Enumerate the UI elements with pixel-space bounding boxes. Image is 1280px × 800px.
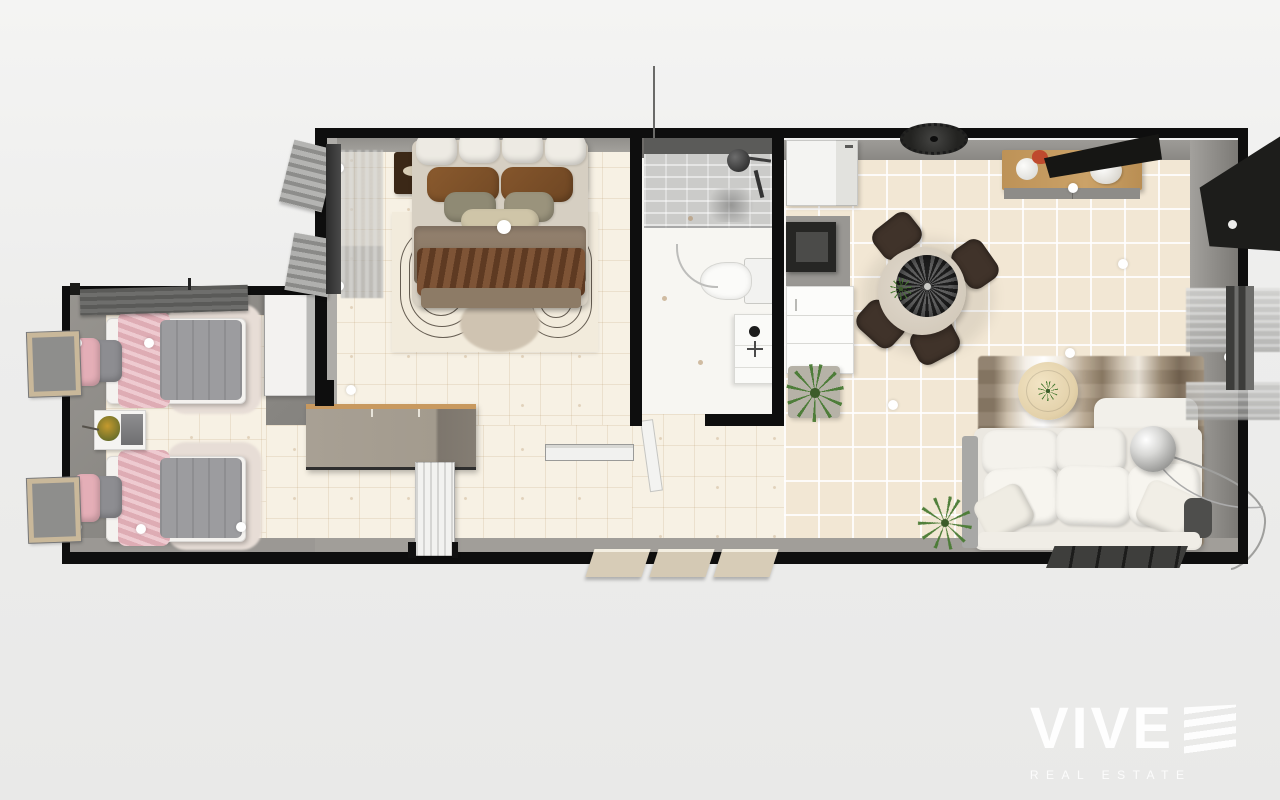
downlight-dot: [1118, 259, 1128, 269]
fan-hub: [930, 136, 938, 142]
downlight-dot: [136, 524, 146, 534]
downlight-dot: [1065, 348, 1075, 358]
shower-head: [727, 149, 750, 172]
kitchen-plant: [786, 364, 844, 422]
wall-bathroom-right: [772, 136, 784, 426]
stepping-stone-1: [585, 549, 650, 577]
wardrobe-seam: [371, 409, 373, 417]
floorplan-render: VIVE REAL ESTATE: [0, 0, 1280, 800]
ceiling-fan: [900, 123, 968, 155]
wall-bathroom-left: [630, 136, 642, 426]
coffee-table-plant: [1038, 381, 1058, 401]
annex-rail-hook: [70, 283, 80, 295]
brand-wordmark: VIVE: [1030, 700, 1174, 758]
master-window-frame: [326, 144, 341, 294]
counter-seam: [787, 343, 853, 344]
door-handle-dot: [1228, 220, 1237, 229]
floor-speck: [688, 216, 693, 221]
annex-top-rail: [80, 285, 249, 315]
stepping-stone-3: [713, 549, 778, 577]
master-window-curtain-lower: [341, 246, 383, 298]
downlight-dot: [346, 385, 356, 395]
faucet-cross-handle: [754, 341, 756, 357]
annex-rail-pole: [188, 278, 191, 290]
shower-shadow: [703, 188, 759, 221]
door-jamb-mark: [452, 542, 458, 558]
master-sliding-door: [545, 444, 634, 461]
nightstand-laptop: [121, 414, 143, 445]
hallway-exterior-door: [415, 462, 455, 556]
shower-dark-band: [644, 138, 772, 154]
shower-glass-line: [644, 226, 772, 228]
wardrobe-seam: [418, 409, 420, 417]
table-plant-sprig: [890, 278, 912, 300]
counter-seam: [787, 315, 853, 316]
downlight-dot: [497, 220, 511, 234]
annex-wardrobe: [264, 292, 318, 396]
hall-wardrobe: [306, 404, 476, 470]
right-window-frame: [1226, 286, 1254, 390]
terrace-deck-grate: [1046, 546, 1188, 568]
door-jamb-mark: [408, 542, 416, 558]
pendant-light-pole: [653, 66, 655, 138]
wall-shared-annex: [315, 286, 327, 406]
fridge-handle: [845, 145, 853, 148]
kitchen-counter: [786, 286, 854, 374]
floor-lamp-ball: [1130, 426, 1176, 472]
brand-tagline: REAL ESTATE: [1030, 768, 1236, 782]
vanity-seam: [735, 345, 777, 346]
vanity-seam: [735, 367, 777, 368]
twin-gray-duvet-1: [160, 320, 242, 400]
annex-window-upper: [27, 331, 81, 397]
downlight-dot: [236, 522, 246, 532]
twin-gray-duvet-2: [160, 458, 242, 538]
stepping-stone-2: [649, 549, 714, 577]
brand-watermark: VIVE REAL ESTATE: [1030, 700, 1236, 782]
cooktop: [786, 222, 836, 272]
brand-stripes-icon: [1184, 705, 1236, 754]
table-center-dot: [924, 283, 931, 290]
wall-bathroom-bottom: [705, 414, 784, 426]
fridge-unit: [786, 140, 858, 206]
downlight-dot: [144, 338, 154, 348]
shower-area: [644, 152, 772, 228]
bed-foot-section: [421, 288, 581, 308]
cooktop-inner: [796, 232, 828, 262]
floor-speck: [662, 296, 667, 301]
floor-speck: [698, 360, 703, 365]
counter-handle: [795, 299, 797, 311]
annex-plant: [97, 416, 120, 441]
downlight-dot: [1068, 183, 1078, 193]
downlight-dot: [888, 400, 898, 410]
annex-window-lower: [27, 477, 81, 543]
vanity-faucet: [749, 326, 760, 337]
